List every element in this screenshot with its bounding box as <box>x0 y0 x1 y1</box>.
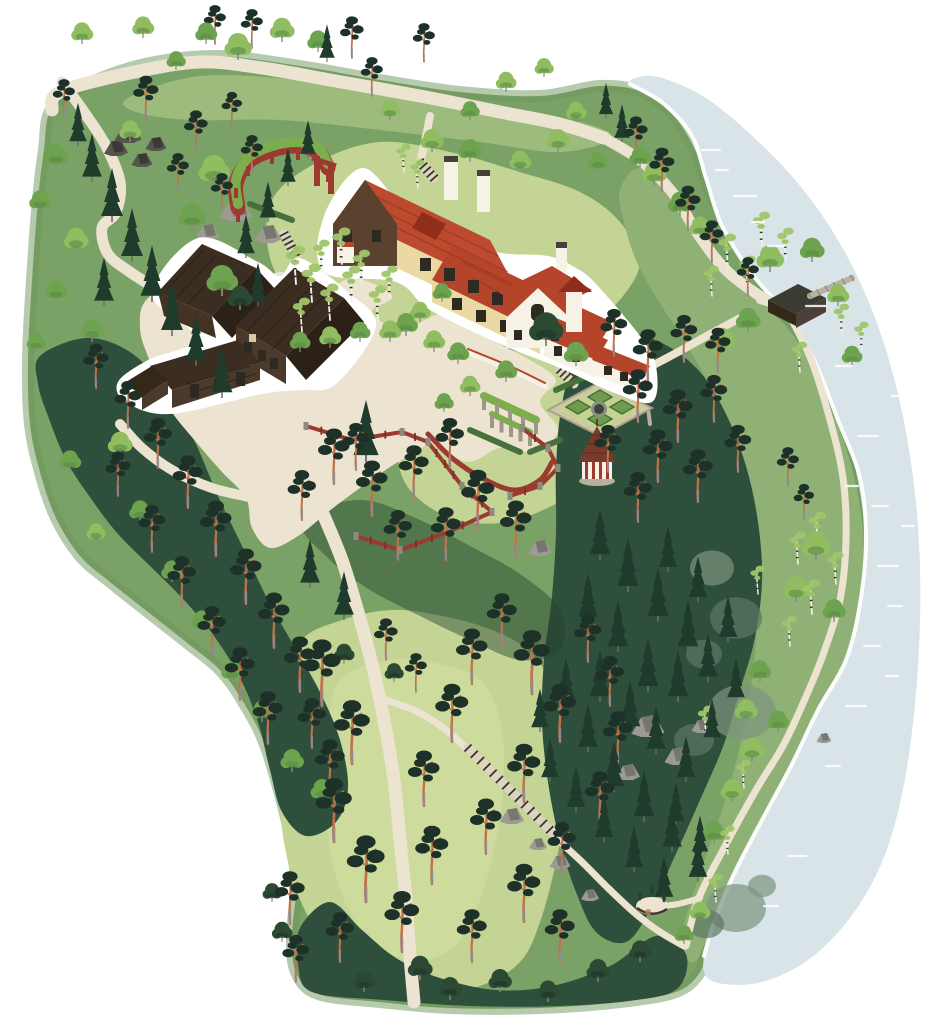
house-window <box>420 258 431 271</box>
round-tree <box>535 58 554 77</box>
cypress-tree <box>638 892 642 901</box>
stone-fence-post <box>520 424 525 432</box>
round-tree <box>71 22 93 44</box>
barn-window <box>270 358 278 369</box>
house-window <box>468 280 479 293</box>
gazebo-stripe <box>599 462 602 479</box>
stone-fence-post <box>490 508 495 516</box>
pergola-post <box>534 422 538 434</box>
pergola-post <box>236 212 240 222</box>
tree-reflection <box>748 875 776 897</box>
pergola-post <box>482 398 486 410</box>
fountain-pond <box>594 404 604 414</box>
round-tree <box>270 18 295 42</box>
stone-fence-post <box>546 444 551 452</box>
pergola-post <box>296 150 300 160</box>
chimney <box>556 246 567 272</box>
pergola-post <box>509 425 513 437</box>
pergola-post <box>246 166 250 176</box>
barn-lit-window <box>249 334 256 342</box>
round-tree <box>195 22 217 44</box>
chimney-cap <box>444 156 458 162</box>
barn-window <box>258 350 266 361</box>
illustrated-estate-map <box>0 0 949 1024</box>
barn-window <box>236 372 245 386</box>
chimney <box>477 174 490 212</box>
round-tree <box>496 72 517 92</box>
chimney <box>444 160 458 200</box>
stone-fence-post <box>426 438 431 446</box>
lookout-ground <box>645 909 651 915</box>
tower-chimney <box>566 288 582 332</box>
stone-fence-post <box>354 532 359 540</box>
cypress-tree <box>650 885 654 895</box>
pergola-post <box>270 154 274 164</box>
gazebo-stripe <box>592 462 595 479</box>
barn-window <box>190 384 199 398</box>
annex-window <box>604 366 612 375</box>
pine-tree <box>413 23 435 62</box>
gate-post <box>328 166 334 194</box>
tree-reflection <box>710 597 762 639</box>
stone-fence-post <box>538 482 543 490</box>
pergola-post <box>490 416 494 428</box>
gazebo-stripe <box>585 462 588 479</box>
pine-tree <box>340 16 364 58</box>
bay-window <box>337 246 354 263</box>
cypress-tree <box>662 894 666 903</box>
stone-fence-post <box>304 422 309 430</box>
round-tree <box>132 16 154 38</box>
house-window <box>444 268 455 281</box>
annex-window <box>620 372 628 381</box>
house-window <box>452 298 462 310</box>
stone-fence-post <box>556 464 561 472</box>
chimney-cap <box>556 242 567 248</box>
pergola-post <box>500 421 504 433</box>
house-window <box>372 230 381 242</box>
map-canvas <box>0 0 949 1024</box>
house-window <box>476 310 486 322</box>
annex-window <box>554 346 562 356</box>
chimney-cap <box>477 170 490 176</box>
pergola-post <box>234 188 238 198</box>
stone-fence-post <box>508 492 513 500</box>
barn-window <box>244 342 252 353</box>
stone-fence-post <box>400 428 405 436</box>
annex-window <box>514 330 522 340</box>
